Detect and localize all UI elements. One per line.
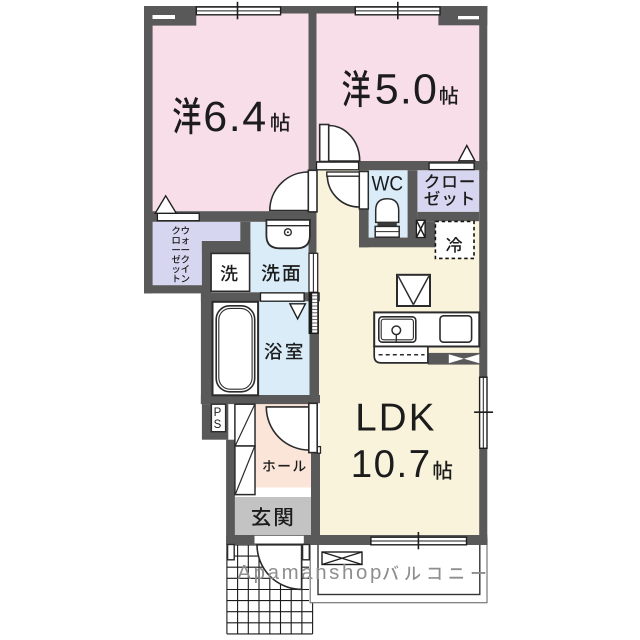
svg-text:6.4: 6.4 <box>203 93 268 141</box>
svg-text:WC: WC <box>371 172 403 195</box>
svg-text:LDK: LDK <box>355 397 437 440</box>
svg-text:5.0: 5.0 <box>375 66 438 114</box>
svg-text:S: S <box>214 419 222 431</box>
svg-text:Apamanshop: Apamanshop <box>237 562 384 584</box>
svg-text:10.7: 10.7 <box>351 443 432 486</box>
svg-text:P: P <box>214 407 222 419</box>
